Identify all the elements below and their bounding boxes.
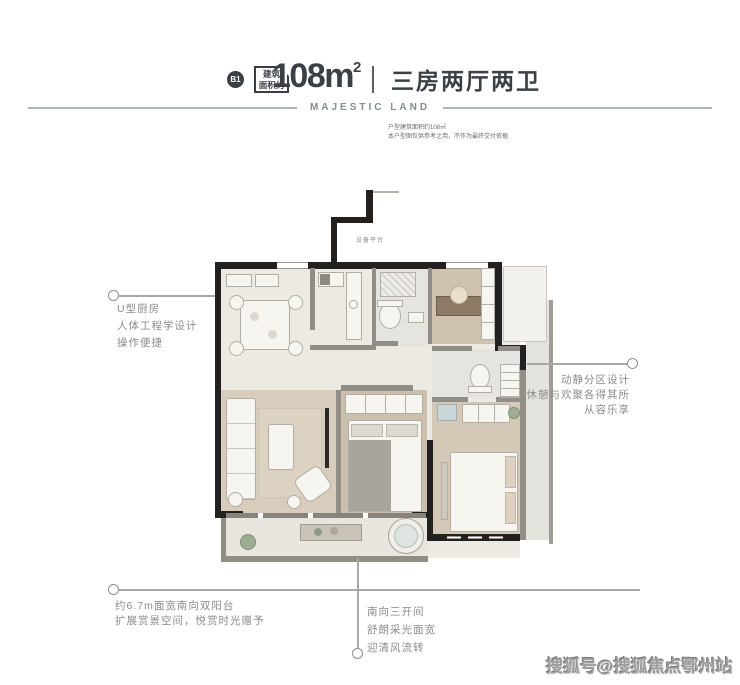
door-gap: [308, 513, 313, 518]
floor-plan: 设备平台: [0, 0, 740, 685]
callout-text-line: U型厨房: [117, 301, 198, 318]
wall-segment: [310, 345, 376, 350]
wall-segment: [336, 390, 341, 513]
callout-line: [527, 363, 627, 365]
window: [489, 536, 503, 539]
wall-segment: [331, 217, 373, 223]
kitchen-cabinet: [226, 274, 252, 287]
callout-text-line: 休憩与欢聚各得其所: [480, 388, 630, 403]
round-tub-inner: [394, 524, 418, 548]
pillow: [386, 424, 418, 437]
plate: [250, 312, 259, 321]
blanket: [349, 440, 391, 511]
plate: [268, 330, 277, 339]
wall-segment: [432, 397, 468, 402]
wall-segment: [215, 262, 221, 518]
wall-segment: [373, 191, 399, 193]
watermark: 搜狐号@搜狐焦点鄂州站: [546, 652, 738, 677]
wall-segment: [428, 268, 432, 344]
wall-segment: [495, 262, 502, 351]
callout-line: [357, 558, 359, 650]
callout-text-line: 扩展赏景空间，悦赏时光赠予: [115, 614, 265, 629]
window: [277, 262, 308, 269]
callout-text-line: 迎清风流转: [367, 639, 436, 657]
coffee-table: [268, 424, 294, 470]
dining-chair: [288, 295, 303, 310]
wall-segment: [498, 346, 520, 351]
dining-chair: [288, 341, 303, 356]
callout-text-line: 人体工程学设计: [117, 318, 198, 335]
desk-chair: [450, 286, 468, 304]
wall-segment: [432, 262, 446, 269]
dining-chair: [229, 295, 244, 310]
wall-segment: [432, 346, 472, 351]
closet: [481, 268, 495, 340]
callout-zoning: 动静分区设计 休憩与欢聚各得其所 从容乐享: [480, 373, 630, 418]
floor-lamp: [228, 492, 243, 507]
callout-line: [119, 589, 640, 591]
balcony-door-track: [226, 513, 426, 518]
callout-text-line: 南向三开间: [367, 603, 436, 621]
toilet-tank: [377, 300, 403, 307]
washbasin: [408, 312, 424, 323]
wall-segment: [372, 268, 376, 346]
callout-text-line: 操作便捷: [117, 335, 198, 352]
callout-text-line: 动静分区设计: [480, 373, 630, 388]
pillow: [505, 456, 516, 488]
stove: [320, 274, 330, 285]
pillow: [351, 424, 383, 437]
pouf: [287, 495, 301, 509]
wall-segment: [427, 440, 433, 540]
wardrobe: [345, 394, 423, 414]
platform-label: 设备平台: [350, 235, 390, 244]
wall-segment: [221, 556, 428, 562]
wall-segment: [372, 341, 398, 346]
plant-pot: [330, 527, 338, 535]
callout-marker: [108, 584, 119, 595]
callout-marker: [108, 290, 119, 301]
washer: [380, 272, 416, 297]
callout-marker: [627, 358, 638, 369]
dining-chair: [229, 341, 244, 356]
kitchen-cabinet: [255, 274, 279, 287]
door-gap: [258, 513, 263, 518]
callout-kitchen: U型厨房 人体工程学设计 操作便捷: [117, 301, 198, 352]
sofa: [226, 398, 256, 500]
wall-segment: [341, 385, 413, 391]
tv-console: [325, 408, 329, 468]
kitchen-sink: [349, 300, 358, 309]
callout-balcony: 约6.7m面宽南向双阳台 扩展赏景空间，悦赏时光赠予: [115, 599, 265, 629]
callout-text-line: 约6.7m面宽南向双阳台: [115, 599, 265, 614]
wall-segment: [331, 217, 337, 268]
wall-segment: [520, 345, 526, 370]
door-gap: [363, 513, 368, 518]
floorplan-page: B1 建筑 面积约 108m 2 三房两厅两卫 MAJESTIC LAND 户型…: [0, 0, 740, 685]
plant: [240, 534, 256, 550]
wall-segment: [308, 262, 432, 269]
pillow: [505, 492, 516, 524]
window: [468, 536, 482, 539]
callout-bays: 南向三开间 舒朗采光面宽 迎清风流转: [367, 603, 436, 657]
dining-table: [240, 300, 290, 350]
wall-segment: [549, 300, 553, 544]
callout-marker: [352, 648, 363, 659]
callout-text-line: 舒朗采光面宽: [367, 621, 436, 639]
callout-text-line: 从容乐享: [480, 403, 630, 418]
shower-pan: [437, 404, 457, 421]
callout-line: [119, 295, 215, 297]
wall-segment: [215, 262, 277, 269]
plant-pot: [314, 528, 322, 536]
floor-ac-platform: [503, 266, 547, 342]
bed-bench: [441, 462, 448, 520]
window: [447, 536, 461, 539]
wall-segment: [310, 268, 315, 330]
